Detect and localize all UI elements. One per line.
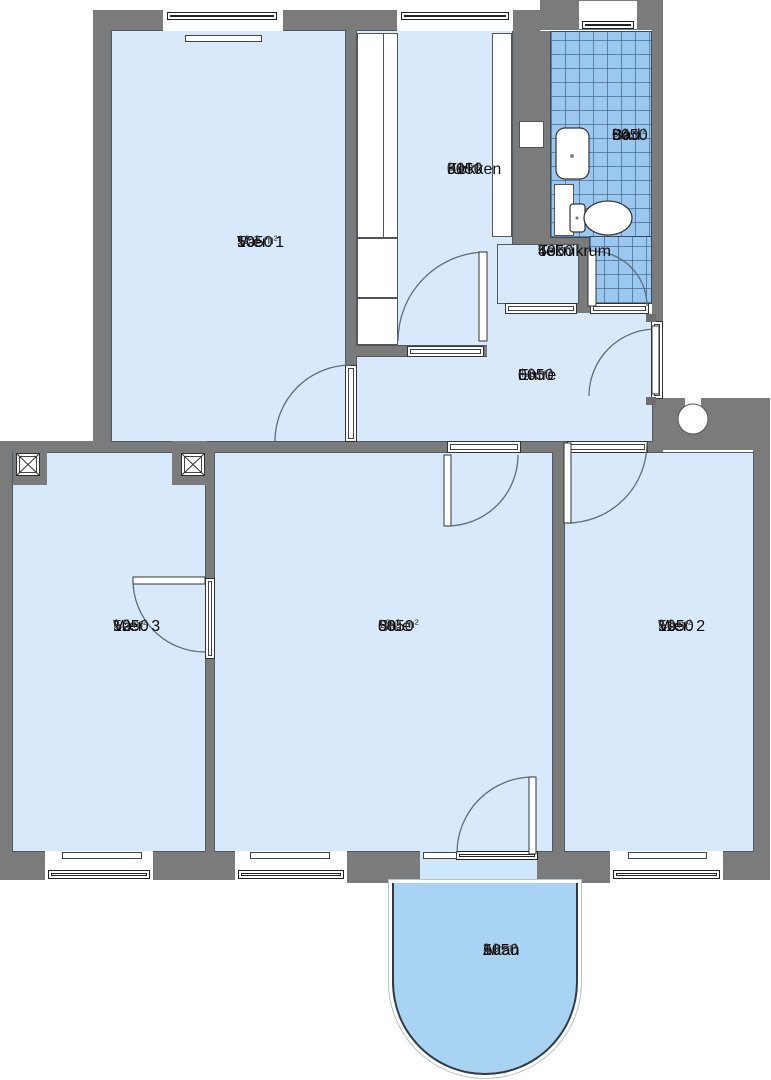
radiator-vaer3 xyxy=(62,852,142,859)
label-area: 0.6 m² xyxy=(538,242,572,257)
door-opening-bad xyxy=(590,303,649,314)
wall-bottom-5 xyxy=(723,851,770,880)
shaft-symbol-left xyxy=(16,453,40,476)
door-opening-entre-vaer2 xyxy=(567,441,648,453)
wall-bottom-1 xyxy=(0,851,45,880)
wall-teknikrum-bottom-right xyxy=(577,303,590,313)
door-opening-koekken xyxy=(407,346,484,357)
wall-right-lower xyxy=(753,450,770,880)
window-bad xyxy=(582,21,634,29)
wall-left-lower xyxy=(0,441,13,880)
door-opening-entre-stue xyxy=(447,441,521,453)
window-vaer1 xyxy=(167,12,277,20)
label-area: 12.2 m² xyxy=(237,233,278,248)
front-door-jamb-bottom xyxy=(646,397,656,405)
label-area: 9.5 m² xyxy=(113,617,147,632)
wall-kitchen-bottom-left xyxy=(357,345,407,357)
wall-bottom-4 xyxy=(537,851,610,883)
kitchen-counter-right xyxy=(492,33,512,237)
bath-ledge xyxy=(555,185,573,235)
room-entre xyxy=(357,357,652,441)
window-vaer2 xyxy=(613,870,720,879)
radiator-vaer2 xyxy=(628,852,707,859)
room-vaer-1 xyxy=(112,31,345,441)
floor-plan: 5050 10 Vær. 1 12.2 m² 5050 01 Køkken 6.… xyxy=(0,0,771,1080)
room-stue xyxy=(215,453,552,851)
wall-bottom-3 xyxy=(347,851,420,883)
kitchen-cabinet-divider xyxy=(383,33,384,238)
wall-vent-box xyxy=(520,122,543,147)
wall-middle-band xyxy=(0,441,663,453)
radiator-stue-balcony xyxy=(423,852,457,859)
wall-stue-vaer2 xyxy=(552,453,565,851)
radiator-stue xyxy=(250,852,330,859)
room-entre-upper xyxy=(487,313,652,357)
kitchen-cabinet-left-2 xyxy=(357,238,398,298)
wall-left-upper xyxy=(93,10,112,453)
door-opening-vaer1 xyxy=(345,365,357,442)
label-area: 6.6 m² xyxy=(447,160,481,175)
radiator-vaer1 xyxy=(185,35,262,42)
balcony-door-sill xyxy=(456,851,538,860)
kitchen-cabinet-left-1 xyxy=(357,33,398,238)
front-door-opening xyxy=(651,321,663,399)
front-door-jamb-top xyxy=(646,314,656,322)
window-vaer3 xyxy=(48,870,150,879)
label-area: 18.3 m² xyxy=(378,617,419,632)
label-area: 4.2 m² xyxy=(518,366,552,381)
label-area: 3.2 m² xyxy=(612,126,646,141)
window-koekken xyxy=(401,12,509,20)
room-vaer-2 xyxy=(565,453,753,851)
door-opening-teknikrum xyxy=(505,303,577,314)
room-vaer-3 xyxy=(13,453,205,851)
wall-bottom-2 xyxy=(153,851,235,880)
wall-vaer1-kitchen xyxy=(345,31,357,365)
door-opening-vaer3 xyxy=(205,578,215,659)
room-altan xyxy=(392,883,578,1075)
stair-wall-notch xyxy=(685,396,701,406)
shaft-symbol-mid xyxy=(181,453,205,476)
label-area: 3.9 m² xyxy=(483,941,517,956)
kitchen-cabinet-left-3 xyxy=(357,298,398,345)
window-stue xyxy=(238,870,344,879)
label-area: 9.8 m² xyxy=(658,617,692,632)
